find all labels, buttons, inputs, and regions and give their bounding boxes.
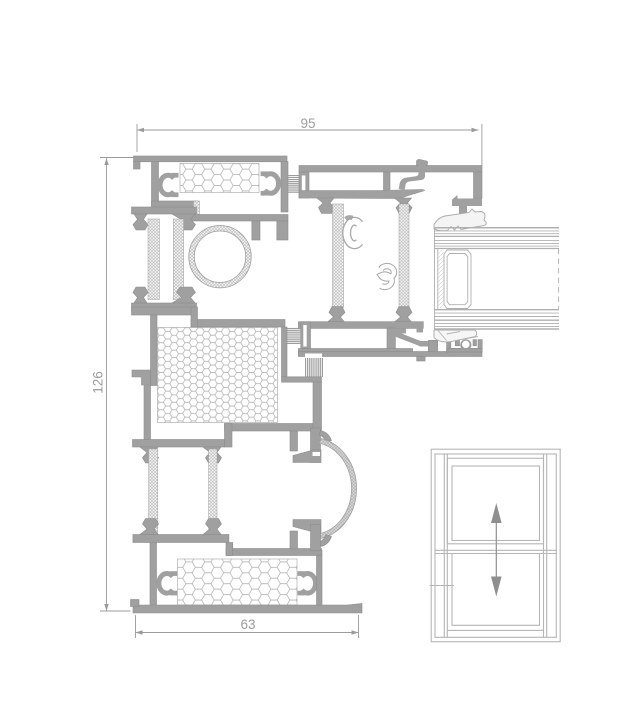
svg-text:95: 95 (300, 116, 315, 131)
svg-text:63: 63 (240, 617, 255, 632)
svg-text:126: 126 (91, 371, 106, 394)
